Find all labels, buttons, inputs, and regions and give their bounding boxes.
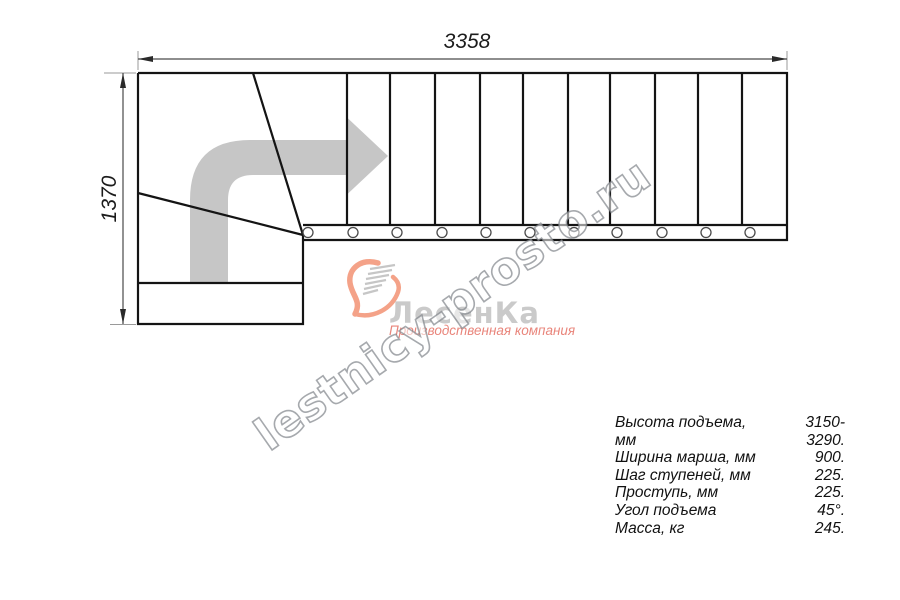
spec-row-height: Высота подъема, мм 3150-3290.	[615, 414, 845, 449]
spec-value: 245.	[815, 520, 845, 538]
stair-plan-page: 3358 1370 ЛесенКа Производственная компа…	[0, 0, 900, 600]
spec-value: 3150-3290.	[768, 414, 845, 449]
spec-value: 225.	[815, 484, 845, 502]
dimension-height-label: 1370	[98, 151, 122, 247]
tread-lines	[347, 73, 742, 225]
baluster-circles	[303, 228, 755, 238]
stair-outline	[138, 73, 787, 324]
spec-value: 900.	[815, 449, 845, 467]
spec-row-mass: Масса, кг 245.	[615, 520, 845, 538]
spec-row-march-width: Ширина марша, мм 900.	[615, 449, 845, 467]
spec-label: Проступь, мм	[615, 484, 718, 502]
dimension-width-label: 3358	[413, 30, 521, 54]
spec-label: Угол подъема	[615, 502, 716, 520]
spec-value: 225.	[815, 467, 845, 485]
logo-tagline: Производственная компания	[389, 323, 575, 338]
spec-label: Ширина марша, мм	[615, 449, 756, 467]
spec-row-step-pitch: Шаг ступеней, мм 225.	[615, 467, 845, 485]
spec-label: Масса, кг	[615, 520, 684, 538]
spec-row-angle: Угол подъема 45°.	[615, 502, 845, 520]
spec-value: 45°.	[817, 502, 845, 520]
spec-label: Высота подъема, мм	[615, 414, 768, 449]
spec-row-tread: Проступь, мм 225.	[615, 484, 845, 502]
specs-table: Высота подъема, мм 3150-3290. Ширина мар…	[615, 414, 845, 537]
spec-label: Шаг ступеней, мм	[615, 467, 751, 485]
